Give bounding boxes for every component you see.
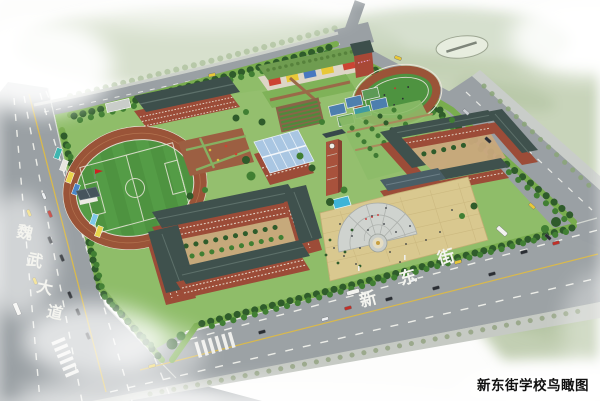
school-birdseye-scene: 魏 武 大 道 新 东 街 新东街学校鸟瞰图	[0, 0, 600, 401]
image-caption: 新东街学校鸟瞰图	[477, 377, 589, 394]
gate-pillar	[404, 255, 406, 260]
fountain-statue	[376, 241, 380, 245]
clock-face	[329, 143, 334, 148]
gate-pillar	[358, 266, 360, 271]
aerial-rendering: 魏 武 大 道 新 东 街 新东街学校鸟瞰图	[0, 0, 600, 401]
